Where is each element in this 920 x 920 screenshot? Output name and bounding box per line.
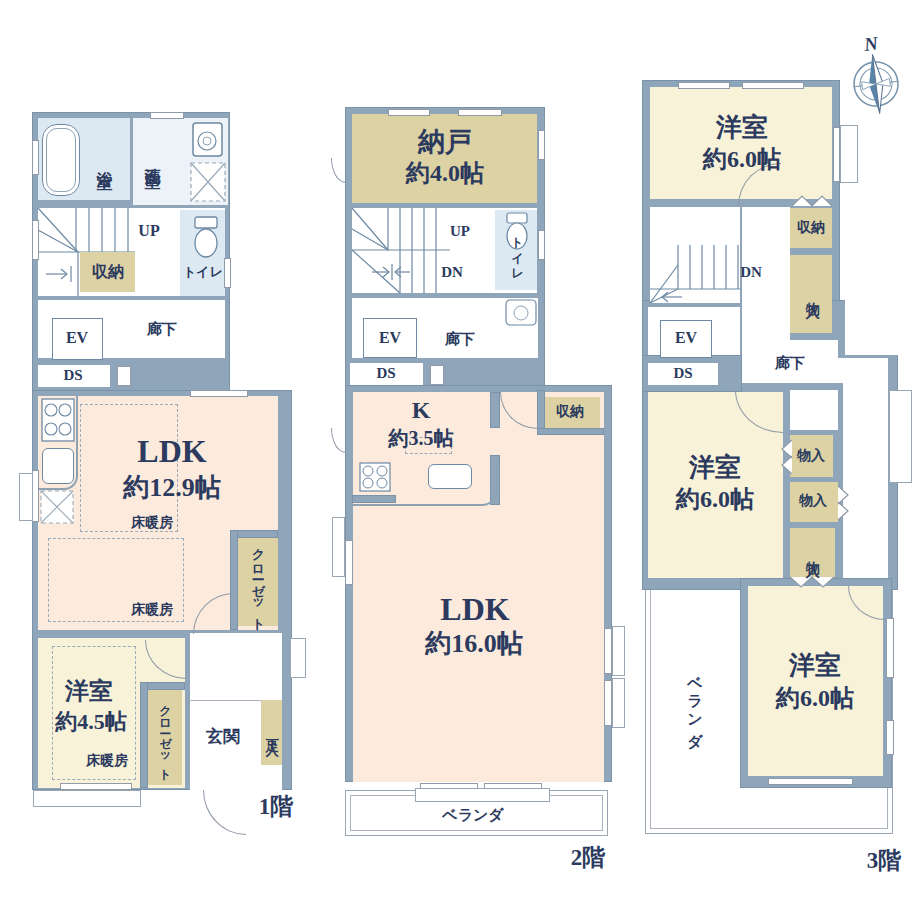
f3-bed1-label: 洋室 — [716, 114, 768, 141]
f2-storage-label: 収納 — [556, 405, 584, 420]
window — [224, 258, 231, 288]
f3-corridor — [790, 390, 838, 430]
toilet-icon — [191, 216, 221, 260]
terrace-step — [33, 790, 141, 807]
f2-hall-label: 廊下 — [445, 332, 475, 348]
window — [678, 82, 730, 89]
window-sill — [612, 678, 625, 728]
window — [388, 109, 430, 116]
f1-closet2-label: クローゼット — [159, 696, 172, 776]
window-sill — [19, 473, 33, 521]
wall — [537, 428, 604, 435]
folding-door-icon — [838, 486, 850, 520]
window-sill — [290, 638, 306, 678]
f1-bed-label: 洋室 — [65, 679, 113, 704]
folding-door-icon — [780, 440, 792, 474]
f2-up-label: UP — [450, 224, 470, 240]
f3-mono3-label: 物入 — [799, 494, 827, 509]
f3-mono2-label: 物入 — [797, 449, 825, 464]
f3-dn-label: DN — [740, 265, 762, 281]
f2-ldk-room — [353, 392, 604, 782]
f2-ev-label: EV — [379, 330, 401, 347]
bay-window — [840, 125, 858, 183]
f1-heat3-label: 床暖房 — [86, 754, 128, 769]
window — [32, 220, 39, 260]
window — [190, 390, 248, 397]
window — [32, 470, 39, 522]
window — [886, 618, 894, 678]
f2-nando-size-label: 約4.0帖 — [406, 161, 484, 186]
washbasin-icon — [505, 299, 537, 326]
window — [768, 778, 853, 785]
f1-floor-label: 1階 — [259, 795, 294, 819]
veranda-step — [415, 788, 550, 802]
window — [150, 112, 184, 119]
compass-icon: N — [842, 28, 914, 124]
f3-floor-label: 3階 — [867, 849, 902, 873]
f3-hall-label: 廊下 — [775, 356, 805, 372]
f2-toilet-label: トイレ — [511, 229, 524, 276]
f3-bed2-size-label: 約6.0帖 — [676, 487, 754, 512]
f1-shoe-label: 下足入 — [265, 728, 279, 734]
f2-nando-label: 納戸 — [418, 128, 472, 156]
f2-ldk-size-label: 約16.0帖 — [425, 630, 523, 657]
floor-plan: 浴室 洗面室 UP 収納 トイレ EV 廊下 DS LDK 約12.9帖 床暖房… — [0, 0, 920, 920]
f2-floor-label: 2階 — [571, 846, 606, 870]
f2-ldk-label: LDK — [440, 593, 509, 627]
sink-icon — [42, 448, 74, 484]
window — [538, 230, 545, 260]
f1-up-label: UP — [138, 223, 159, 240]
laundry-pan-icon — [190, 162, 226, 202]
f3-ev-label: EV — [675, 330, 697, 347]
f3-bed1-size-label: 約6.0帖 — [703, 147, 781, 172]
window — [833, 127, 840, 182]
f3-bed3-label: 洋室 — [789, 652, 841, 679]
f1-ldk-size-label: 約12.9帖 — [123, 474, 221, 501]
f1-toilet-label: トイレ — [183, 265, 223, 279]
bathtub-icon — [42, 124, 80, 196]
f2-dn-label: DN — [441, 265, 463, 281]
f3-bed3-size-label: 約6.0帖 — [776, 686, 854, 711]
entrance-door-arc — [203, 790, 246, 835]
stairs-icon — [352, 208, 450, 293]
window — [117, 366, 131, 386]
washer-icon — [192, 122, 224, 158]
f1-heat2-label: 床暖房 — [131, 603, 173, 618]
f2-k-label: K — [412, 398, 431, 423]
f3-bed1-room — [650, 87, 832, 199]
f2-ds-label: DS — [376, 366, 395, 382]
window — [538, 130, 545, 160]
f3-corridor — [742, 358, 888, 383]
f1-wash-label: 洗面室 — [144, 155, 161, 161]
f3-storage-label: 収納 — [797, 221, 825, 236]
f1-bed-size-label: 約4.5帖 — [55, 710, 127, 733]
exterior-door-arc — [331, 428, 346, 453]
f1-bath-label: 浴室 — [96, 158, 113, 162]
pan-space-icon — [40, 490, 74, 524]
f1-entrance-label: 玄関 — [206, 728, 240, 746]
wall — [140, 682, 148, 788]
f3-mono1-label: 物入 — [805, 291, 820, 295]
window — [345, 540, 353, 585]
f1-ev-label: EV — [66, 330, 88, 347]
wall — [490, 392, 500, 428]
window-sill — [612, 626, 625, 676]
f1-closet1-label: クローゼット — [251, 539, 265, 625]
window — [430, 365, 444, 385]
f1-hall-label: 廊下 — [147, 322, 177, 338]
f3-mono4-label: 物入 — [805, 550, 820, 554]
window — [458, 109, 502, 116]
folding-door-icon — [790, 577, 834, 589]
sink-icon — [428, 464, 472, 489]
window — [886, 720, 894, 755]
bathtub-inner — [46, 128, 76, 192]
exterior-door-arc — [331, 158, 346, 183]
f1-storage-label: 収納 — [92, 264, 124, 281]
window — [604, 628, 612, 674]
folding-door-icon — [792, 194, 832, 206]
stairs-icon — [650, 245, 740, 303]
compass-north-text: N — [862, 32, 880, 55]
f1-ds-label: DS — [63, 368, 82, 384]
outside-mask — [845, 293, 903, 355]
f1-heat1-label: 床暖房 — [131, 516, 173, 531]
f3-veranda-label: ベランダ — [686, 665, 702, 741]
f3-ds-label: DS — [673, 366, 692, 382]
f1-ldk-label: LDK — [137, 435, 206, 469]
window — [60, 783, 132, 790]
stove-icon — [41, 398, 75, 442]
f3-bed3-room — [748, 586, 883, 776]
window — [604, 680, 612, 726]
f3-bed2-label: 洋室 — [689, 454, 741, 481]
f2-veranda-label: ベランダ — [442, 808, 503, 824]
f3-corridor — [843, 383, 888, 578]
f2-k-size-label: 約3.5帖 — [389, 428, 454, 449]
bay-window — [889, 390, 912, 483]
window — [742, 82, 804, 89]
window-sill — [332, 517, 345, 577]
window — [32, 140, 39, 175]
stove-icon — [359, 462, 391, 492]
